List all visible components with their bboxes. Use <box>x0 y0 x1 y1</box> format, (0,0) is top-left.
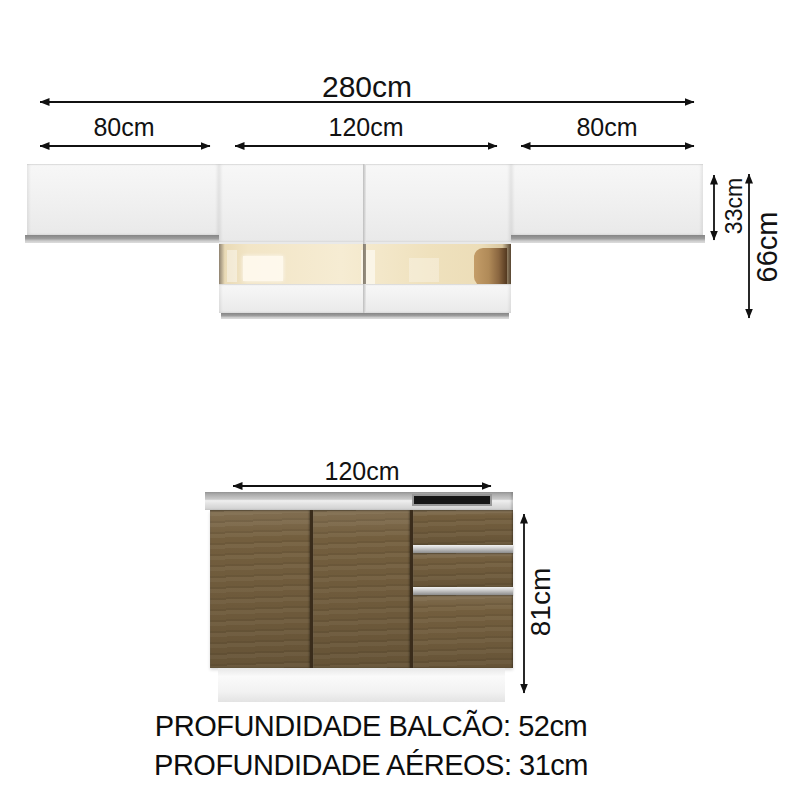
wall-cabinet-left <box>27 164 219 235</box>
dim-label-wall-total-height: 66cm <box>751 212 784 283</box>
dim-label-wall-total-width: 280cm <box>322 70 412 104</box>
wall-cabinet-middle-door-divider <box>363 164 366 313</box>
drawer-2 <box>413 553 513 587</box>
wall-cabinet-right-trim <box>511 235 705 243</box>
cooktop-inset <box>412 494 492 506</box>
wall-cabinet-left-trim <box>25 235 219 243</box>
base-door-right <box>313 510 410 668</box>
product-dimensions-diagram: 280cm 80cm 120cm 80cm 33cm 66cm 120cm 81… <box>0 0 800 800</box>
footer-depth-balcao: PROFUNDIDADE BALCÃO: 52cm <box>0 710 742 743</box>
wall-cabinet-middle-trim <box>221 313 509 319</box>
drawer-1 <box>413 510 513 545</box>
dim-label-wall-right-width: 80cm <box>576 113 637 142</box>
dim-label-wall-door-height: 33cm <box>721 178 748 234</box>
dim-label-wall-left-width: 80cm <box>93 113 154 142</box>
wooden-bowl-in-glass-cabinet <box>474 248 507 286</box>
footer-depth-aereos: PROFUNDIDADE AÉREOS: 31cm <box>0 749 742 782</box>
drawer-1-handle <box>413 545 513 553</box>
glass-reflection <box>243 256 283 281</box>
drawer-3 <box>413 595 513 668</box>
dim-label-wall-middle-width: 120cm <box>328 113 403 142</box>
wall-cabinet-right <box>511 164 703 235</box>
base-door-left <box>210 510 310 668</box>
wall-cabinet-middle-door-divider-glass <box>363 244 366 284</box>
base-cabinet-body <box>210 510 513 668</box>
glass-reflection <box>227 250 237 282</box>
dim-label-base-width: 120cm <box>324 457 399 486</box>
base-cabinet-plinth <box>218 668 505 702</box>
glass-reflection <box>409 258 439 282</box>
drawer-2-handle <box>413 587 513 595</box>
dim-label-base-height: 81cm <box>525 568 557 636</box>
